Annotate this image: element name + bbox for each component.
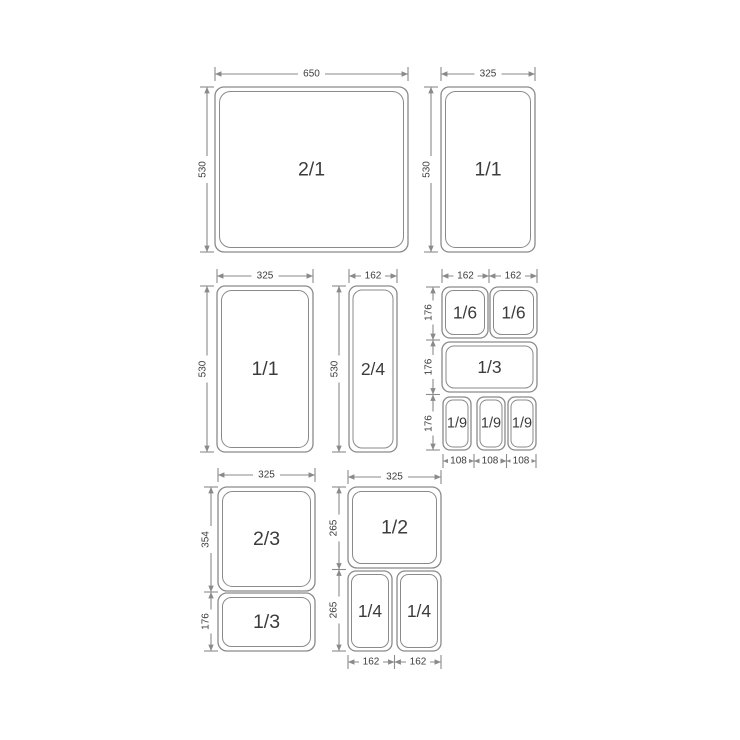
dim-label: 530	[422, 161, 433, 178]
dim-label: 176	[424, 415, 435, 432]
pan-label: 1/3	[253, 611, 280, 633]
pan-1-3-bottom: 1/3	[218, 593, 315, 651]
dim-label: 265	[329, 601, 340, 618]
dim-108-bottom-a: 108	[443, 454, 474, 468]
dim-label: 176	[201, 613, 212, 630]
dim-label: 325	[258, 470, 275, 481]
dim-label: 265	[329, 519, 340, 536]
pan-1-2: 1/2	[348, 487, 441, 568]
dim-325-top-2-3: 325	[218, 468, 315, 482]
dim-label: 108	[513, 456, 530, 467]
dim-176-left-1-3: 176	[200, 592, 218, 651]
dim-530-left-1-1-mid: 530	[197, 286, 214, 452]
dim-162-bottom-b: 162	[395, 655, 442, 669]
dim-265-left-1-4: 265	[328, 570, 346, 652]
dim-176-left-row3: 176	[423, 395, 440, 451]
pan-2-4: 2/4	[349, 286, 397, 452]
dim-162-bottom-a: 162	[348, 655, 395, 669]
dim-label: 530	[198, 360, 209, 377]
dim-label: 530	[330, 360, 341, 377]
pan-1-9-b: 1/9	[477, 397, 505, 450]
pan-label: 1/2	[381, 517, 408, 539]
dim-label: 108	[450, 456, 467, 467]
pan-label: 1/6	[501, 303, 525, 323]
pan-label: 1/4	[407, 601, 432, 621]
dim-530-left-2-4: 530	[329, 286, 346, 452]
pan-label: 1/4	[358, 601, 383, 621]
pan-1-4-a: 1/4	[348, 571, 392, 651]
dim-label: 108	[482, 456, 499, 467]
dim-265-left-1-2: 265	[328, 487, 346, 570]
pan-1-3-cluster: 1/3	[442, 342, 537, 392]
dim-label: 162	[505, 271, 522, 282]
dim-325-top-1-1: 325	[441, 67, 535, 81]
dim-label: 162	[365, 271, 382, 282]
pan-label: 1/9	[447, 416, 467, 432]
dim-176-left-row1: 176	[423, 287, 440, 340]
pan-label: 2/4	[361, 359, 386, 379]
dim-162-top-cluster-a: 162	[442, 269, 489, 283]
pan-label: 2/1	[298, 159, 325, 181]
dim-325-top-1-2: 325	[348, 470, 441, 484]
pan-label: 1/9	[512, 416, 532, 432]
dim-label: 176	[424, 358, 435, 375]
pan-1-1-mid: 1/1	[217, 286, 313, 452]
pan-1-6-b: 1/6	[490, 287, 537, 338]
dim-label: 325	[257, 271, 274, 282]
diagram-canvas: 650 530 2/1 325 530 1/1	[0, 0, 740, 740]
pan-1-1-top: 1/1	[441, 87, 535, 252]
dim-162-top-cluster-b: 162	[489, 269, 537, 283]
dim-label: 162	[363, 657, 380, 668]
dim-162-top-2-4: 162	[349, 269, 397, 283]
dim-650-top: 650	[215, 67, 408, 81]
dim-176-left-row2: 176	[423, 340, 440, 395]
dim-label: 325	[386, 472, 403, 483]
pan-label: 2/3	[253, 528, 280, 550]
pan-label: 1/1	[474, 159, 501, 181]
dim-label: 162	[457, 271, 474, 282]
pan-1-6-a: 1/6	[442, 287, 488, 338]
dim-530-left-2-1: 530	[197, 87, 214, 252]
pan-2-1: 2/1	[215, 87, 408, 252]
pan-label: 1/9	[481, 416, 501, 432]
pan-label: 1/6	[453, 303, 477, 323]
dim-label: 530	[198, 161, 209, 178]
pan-2-3: 2/3	[218, 487, 315, 591]
pan-1-4-b: 1/4	[397, 571, 441, 651]
pan-1-9-c: 1/9	[508, 397, 536, 450]
dim-label: 354	[201, 531, 212, 548]
dim-label: 650	[303, 69, 320, 80]
pan-label: 1/1	[251, 358, 278, 380]
dim-325-top-1-1-mid: 325	[217, 269, 313, 283]
dim-label: 176	[424, 304, 435, 321]
pan-label: 1/3	[477, 357, 501, 377]
gastronorm-size-diagram: 650 530 2/1 325 530 1/1	[0, 0, 740, 740]
pan-1-9-a: 1/9	[443, 397, 471, 450]
dim-354-left: 354	[200, 487, 218, 592]
dim-108-bottom-b: 108	[474, 454, 507, 468]
dim-label: 325	[480, 69, 497, 80]
dim-108-bottom-c: 108	[507, 454, 537, 468]
dim-label: 162	[410, 657, 427, 668]
dim-530-left-1-1-top: 530	[421, 87, 438, 252]
